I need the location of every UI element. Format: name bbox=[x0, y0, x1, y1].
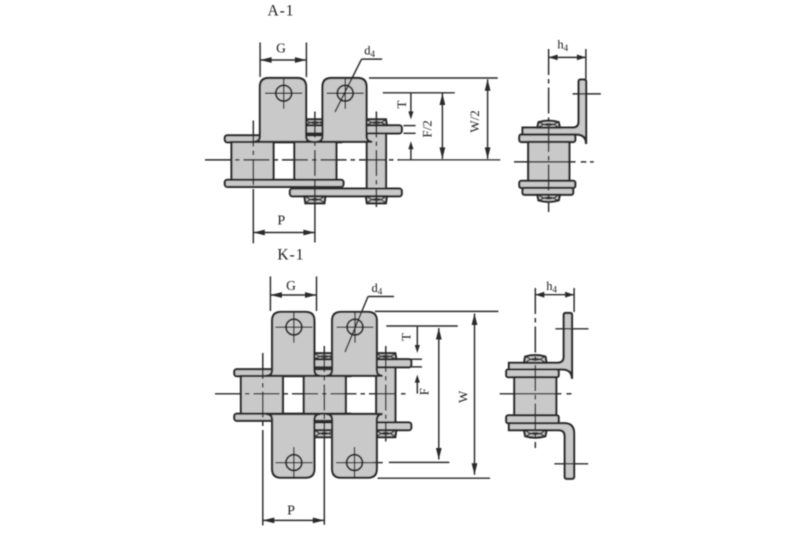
svg-text:W/2: W/2 bbox=[467, 110, 482, 132]
svg-text:G: G bbox=[276, 41, 286, 56]
svg-text:F/2: F/2 bbox=[419, 120, 434, 137]
svg-text:P: P bbox=[287, 504, 295, 519]
svg-text:F: F bbox=[416, 388, 431, 395]
svg-text:T: T bbox=[394, 100, 409, 108]
svg-text:W: W bbox=[456, 390, 471, 403]
svg-text:G: G bbox=[286, 278, 296, 293]
svg-text:K-1: K-1 bbox=[277, 247, 304, 264]
svg-text:A-1: A-1 bbox=[267, 3, 294, 20]
svg-text:P: P bbox=[277, 214, 285, 229]
svg-text:T: T bbox=[399, 333, 414, 341]
